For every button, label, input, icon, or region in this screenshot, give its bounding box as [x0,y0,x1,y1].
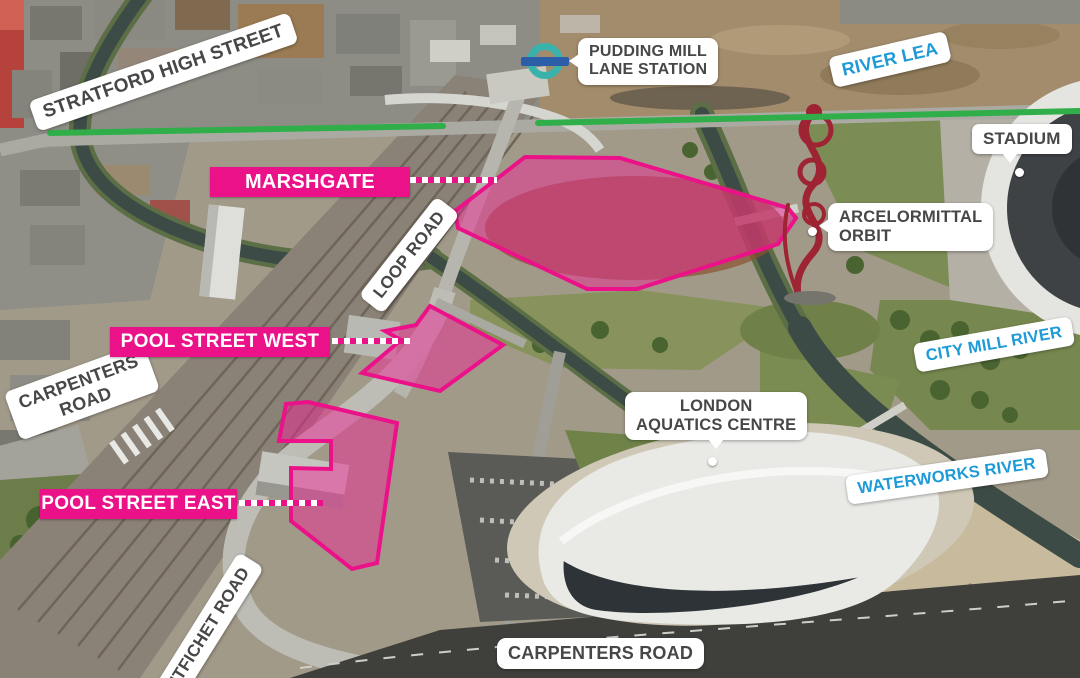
pool-street-east-connector-dashes [239,500,323,506]
road-label-carpenters-road-south: CARPENTERS ROAD [497,638,704,669]
site-label-pool-street-west: POOL STREET WEST [110,327,330,357]
station-label-pudding-mill-lane: PUDDING MILL LANE STATION [578,38,718,85]
marshgate-connector-dashes [410,177,497,183]
site-label-marshgate: MARSHGATE [210,167,410,197]
aquatics-marker-dot [708,457,717,466]
landmark-label-london-aquatics-centre: LONDON AQUATICS CENTRE [625,392,807,440]
olympic-park-map: STRATFORD HIGH STREET LOOP ROAD CARPENTE… [0,0,1080,678]
stadium-marker-dot [1015,168,1024,177]
landmark-label-stadium: STADIUM [972,124,1072,154]
pool-street-west-connector-dashes [332,338,410,344]
transit-roundel-icon [527,43,563,79]
landmark-label-arcelormittal-orbit: ARCELORMITTAL ORBIT [828,203,993,251]
orbit-marker-dot [808,227,817,236]
site-label-pool-street-east: POOL STREET EAST [40,489,237,519]
